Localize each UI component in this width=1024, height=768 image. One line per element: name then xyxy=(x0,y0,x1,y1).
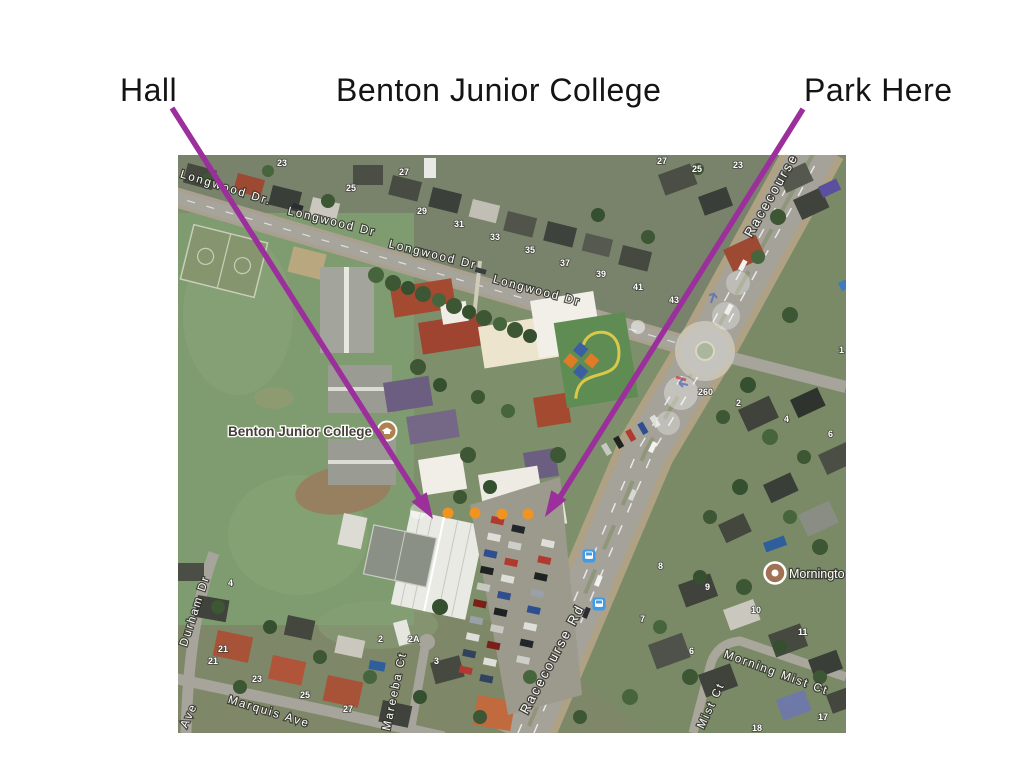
bus-stop-icon[interactable] xyxy=(593,598,606,611)
house-number: 2A xyxy=(408,634,420,644)
satellite-map[interactable]: Longwood Dr. Longwood Dr Longwood Dr Lon… xyxy=(178,155,846,733)
house-number: 1 xyxy=(839,345,844,355)
house-number: 9 xyxy=(705,582,710,592)
house-number: 27 xyxy=(343,704,353,714)
house-number: 8 xyxy=(658,561,663,571)
house-number: 21 xyxy=(218,644,228,654)
house-number: 4 xyxy=(784,414,789,424)
school-icon[interactable] xyxy=(378,422,397,441)
house-number: 25 xyxy=(346,183,356,193)
mornington-map-label[interactable]: Morningto xyxy=(789,567,845,581)
house-number: 23 xyxy=(252,674,262,684)
house-number: 43 xyxy=(669,295,679,305)
house-number: 2 xyxy=(736,398,741,408)
house-number: 6 xyxy=(828,429,833,439)
house-number: 23 xyxy=(733,160,743,170)
college-title-label: Benton Junior College xyxy=(336,72,661,109)
house-number: 260 xyxy=(698,387,713,397)
house-number: 7 xyxy=(640,614,645,624)
house-number: 25 xyxy=(300,690,310,700)
house-number: 3 xyxy=(434,656,439,666)
house-number: 39 xyxy=(596,269,606,279)
house-number: 11 xyxy=(798,627,808,637)
house-number: 41 xyxy=(633,282,643,292)
house-number: 37 xyxy=(560,258,570,268)
house-number: 2 xyxy=(378,634,383,644)
house-number: 10 xyxy=(751,605,761,615)
poi-dot-icon[interactable] xyxy=(765,563,786,584)
house-number: 21 xyxy=(208,656,218,666)
hall-label: Hall xyxy=(120,72,177,109)
benton-junior-college-map-label[interactable]: Benton Junior College xyxy=(228,424,372,439)
house-number: 27 xyxy=(657,156,667,166)
house-number: 17 xyxy=(818,712,828,722)
house-number: 31 xyxy=(454,219,464,229)
house-number: 35 xyxy=(525,245,535,255)
house-number: 18 xyxy=(752,723,762,733)
house-number: 33 xyxy=(490,232,500,242)
house-number: 29 xyxy=(417,206,427,216)
house-number: 4 xyxy=(228,578,233,588)
park-here-label: Park Here xyxy=(804,72,953,109)
house-number: 27 xyxy=(399,167,409,177)
house-number: 25 xyxy=(692,164,702,174)
house-number: 6 xyxy=(689,646,694,656)
house-number: 23 xyxy=(277,158,287,168)
bus-stop-icon[interactable] xyxy=(583,550,596,563)
